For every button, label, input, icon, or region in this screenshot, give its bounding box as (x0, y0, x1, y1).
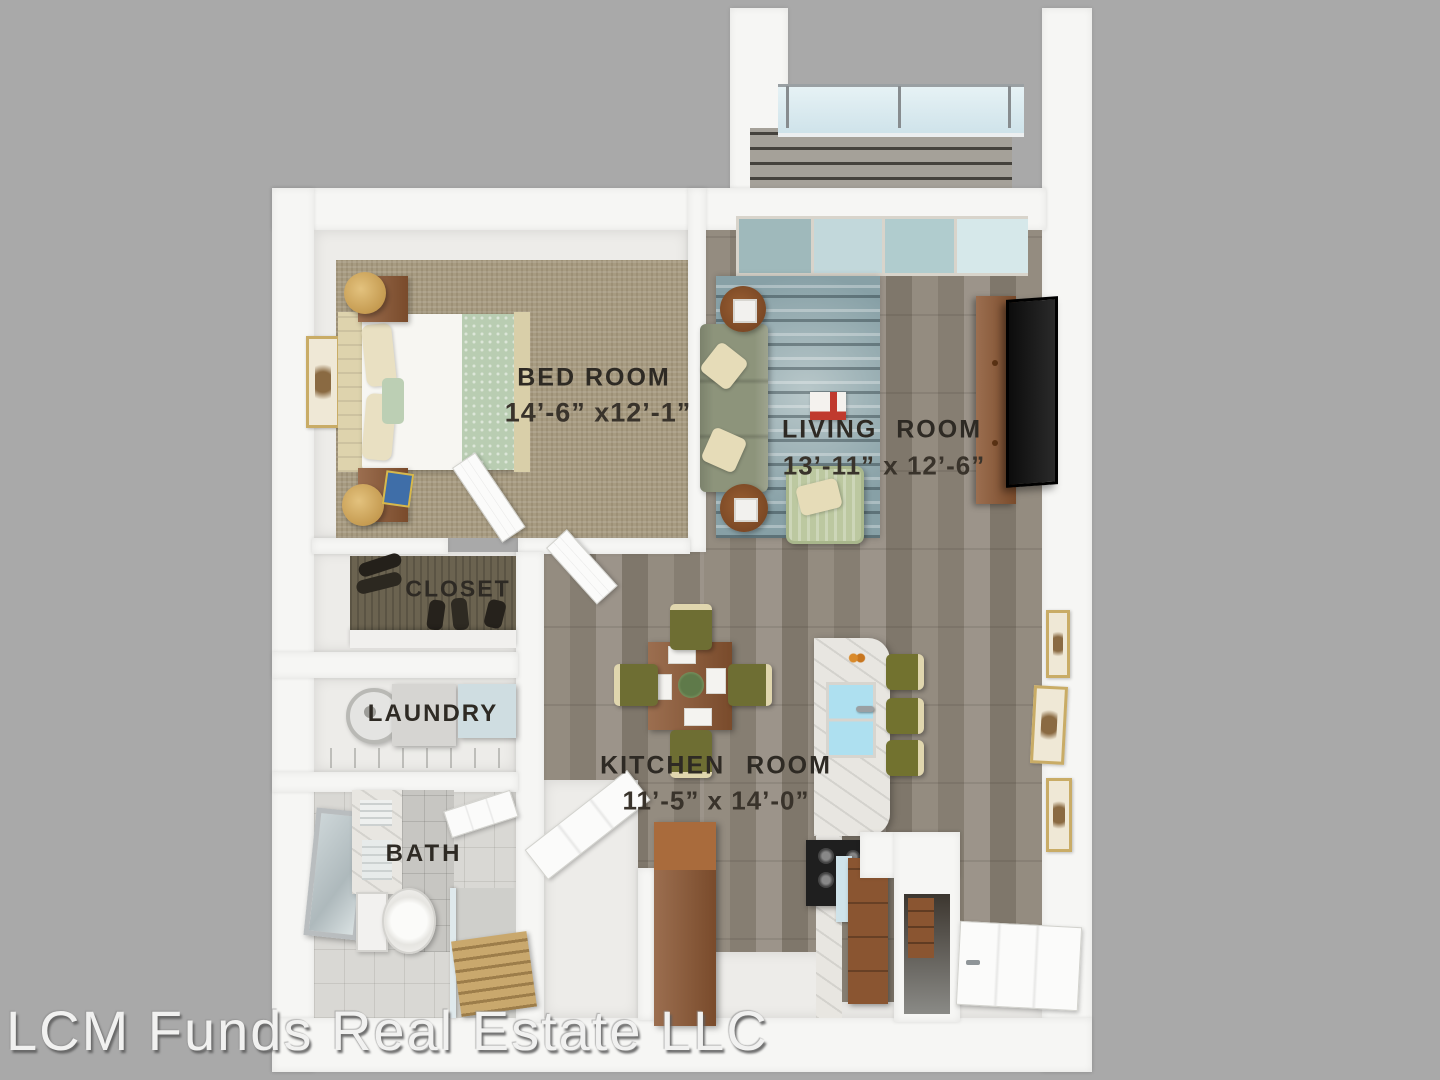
railing-post-icon (786, 86, 789, 128)
bed-headboard (338, 312, 364, 472)
entry-door-leaf (956, 921, 1082, 1011)
cabinet-knob-icon (992, 440, 998, 446)
bar-stool (886, 654, 924, 690)
bedside-book (382, 470, 414, 508)
left-outer-wall (272, 188, 314, 1072)
cabinet-knob-icon (992, 360, 998, 366)
wall-print (1046, 610, 1070, 678)
print-art-icon (1053, 796, 1064, 834)
window-pane (811, 219, 886, 273)
right-outer-wall (1042, 8, 1092, 1072)
kitchen-lower-cabinet (848, 858, 888, 1004)
bedroom-bottom-wall-left (312, 538, 448, 554)
bar-stool (886, 698, 924, 734)
window-pane (739, 219, 811, 273)
floor-plan-scene: BED ROOM 14’-6” x12’-1” LIVING ROOM 13’-… (0, 0, 1440, 1080)
towel-icon (360, 800, 392, 826)
living-room-label: LIVING ROOM (782, 416, 982, 445)
candle-tray-icon (734, 498, 758, 522)
bedroom-label: BED ROOM (517, 364, 671, 393)
living-room-window (736, 216, 1028, 276)
table-lamp-icon (342, 484, 384, 526)
laundry-label: LAUNDRY (368, 700, 498, 728)
kitchen-label: KITCHEN ROOM (600, 752, 832, 781)
place-setting-icon (684, 708, 712, 726)
tv-screen (1006, 296, 1058, 488)
art-print-icon (315, 358, 331, 406)
bath-label: BATH (386, 840, 463, 868)
bed-accent-pillow (382, 378, 404, 424)
burner-icon (818, 872, 834, 888)
living-room-dimensions: 13’-11” x 12’-6” (783, 451, 985, 482)
closet-shelf (350, 630, 516, 648)
closet-bottom-wall (272, 652, 518, 678)
buffet-wood-top (654, 822, 716, 870)
fruit-bowl-icon (848, 652, 866, 664)
wall-print (1046, 778, 1072, 852)
bar-stool (886, 740, 924, 776)
print-art-icon (1040, 704, 1058, 745)
burner-icon (818, 848, 834, 864)
place-setting-icon (706, 668, 726, 694)
toilet-bowl (382, 888, 436, 954)
balcony-deck-floor (750, 128, 1012, 192)
bed-runner-blanket (462, 314, 514, 470)
pantry-shelves (908, 898, 934, 958)
island-sink (826, 682, 876, 758)
sink-faucet-icon (856, 706, 874, 712)
laundry-floor-grate (330, 748, 510, 768)
laundry-bottom-wall (272, 772, 518, 792)
candle-tray-icon (733, 299, 757, 323)
window-pane (954, 219, 1029, 273)
kitchen-dimensions: 11’-5” x 14’-0” (623, 786, 810, 817)
door-handle-icon (966, 960, 980, 965)
dining-chair (728, 664, 772, 706)
wall-print (1030, 685, 1068, 765)
bedroom-dimensions: 14’-6” x12’-1” (505, 398, 692, 429)
closet-label: CLOSET (405, 576, 510, 603)
dining-chair (670, 604, 712, 650)
table-centerpiece-plant (678, 672, 704, 698)
dining-chair (614, 664, 658, 706)
bedroom-wall-art (306, 336, 340, 428)
balcony-glass-railing (778, 84, 1024, 137)
window-pane (882, 219, 957, 273)
table-lamp-icon (344, 272, 386, 314)
railing-post-icon (1008, 86, 1011, 128)
railing-post-icon (898, 86, 901, 128)
print-art-icon (1053, 627, 1063, 662)
watermark-text: LCM Funds Real Estate LLC (6, 998, 769, 1063)
